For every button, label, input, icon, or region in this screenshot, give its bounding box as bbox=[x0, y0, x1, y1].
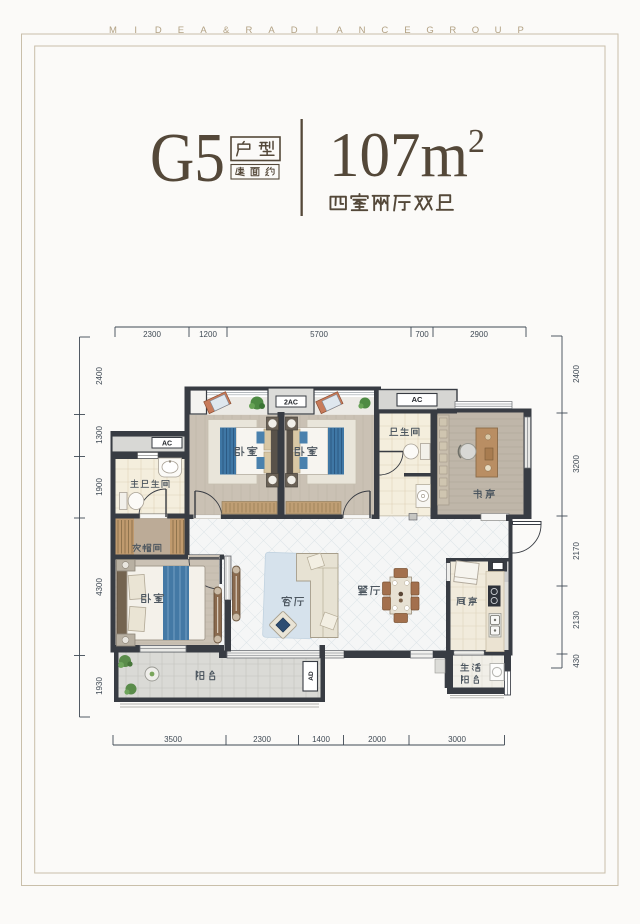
svg-text:2400: 2400 bbox=[572, 365, 581, 383]
svg-text:4300: 4300 bbox=[95, 578, 104, 596]
svg-text:2900: 2900 bbox=[470, 330, 488, 339]
svg-text:1400: 1400 bbox=[312, 735, 330, 744]
svg-text:AC: AC bbox=[162, 441, 172, 448]
svg-text:2000: 2000 bbox=[368, 735, 386, 744]
svg-text:2400: 2400 bbox=[95, 367, 104, 385]
svg-text:430: 430 bbox=[572, 654, 581, 668]
svg-text:1930: 1930 bbox=[95, 677, 104, 695]
svg-text:AC: AC bbox=[412, 395, 423, 404]
svg-text:1900: 1900 bbox=[95, 478, 104, 496]
svg-text:G5: G5 bbox=[150, 120, 225, 197]
svg-text:3200: 3200 bbox=[572, 455, 581, 473]
svg-text:3000: 3000 bbox=[448, 735, 466, 744]
svg-text:1300: 1300 bbox=[95, 426, 104, 444]
svg-text:1200: 1200 bbox=[199, 330, 217, 339]
svg-text:2AC: 2AC bbox=[284, 400, 298, 407]
svg-text:2130: 2130 bbox=[572, 611, 581, 629]
svg-text:107m: 107m bbox=[329, 119, 468, 190]
svg-text:2: 2 bbox=[468, 123, 485, 160]
svg-text:700: 700 bbox=[415, 330, 429, 339]
svg-text:2300: 2300 bbox=[253, 735, 271, 744]
svg-text:3500: 3500 bbox=[164, 735, 182, 744]
svg-text:AD: AD bbox=[308, 671, 315, 681]
svg-text:2170: 2170 bbox=[572, 542, 581, 560]
svg-text:2300: 2300 bbox=[143, 330, 161, 339]
svg-text:5700: 5700 bbox=[310, 330, 328, 339]
